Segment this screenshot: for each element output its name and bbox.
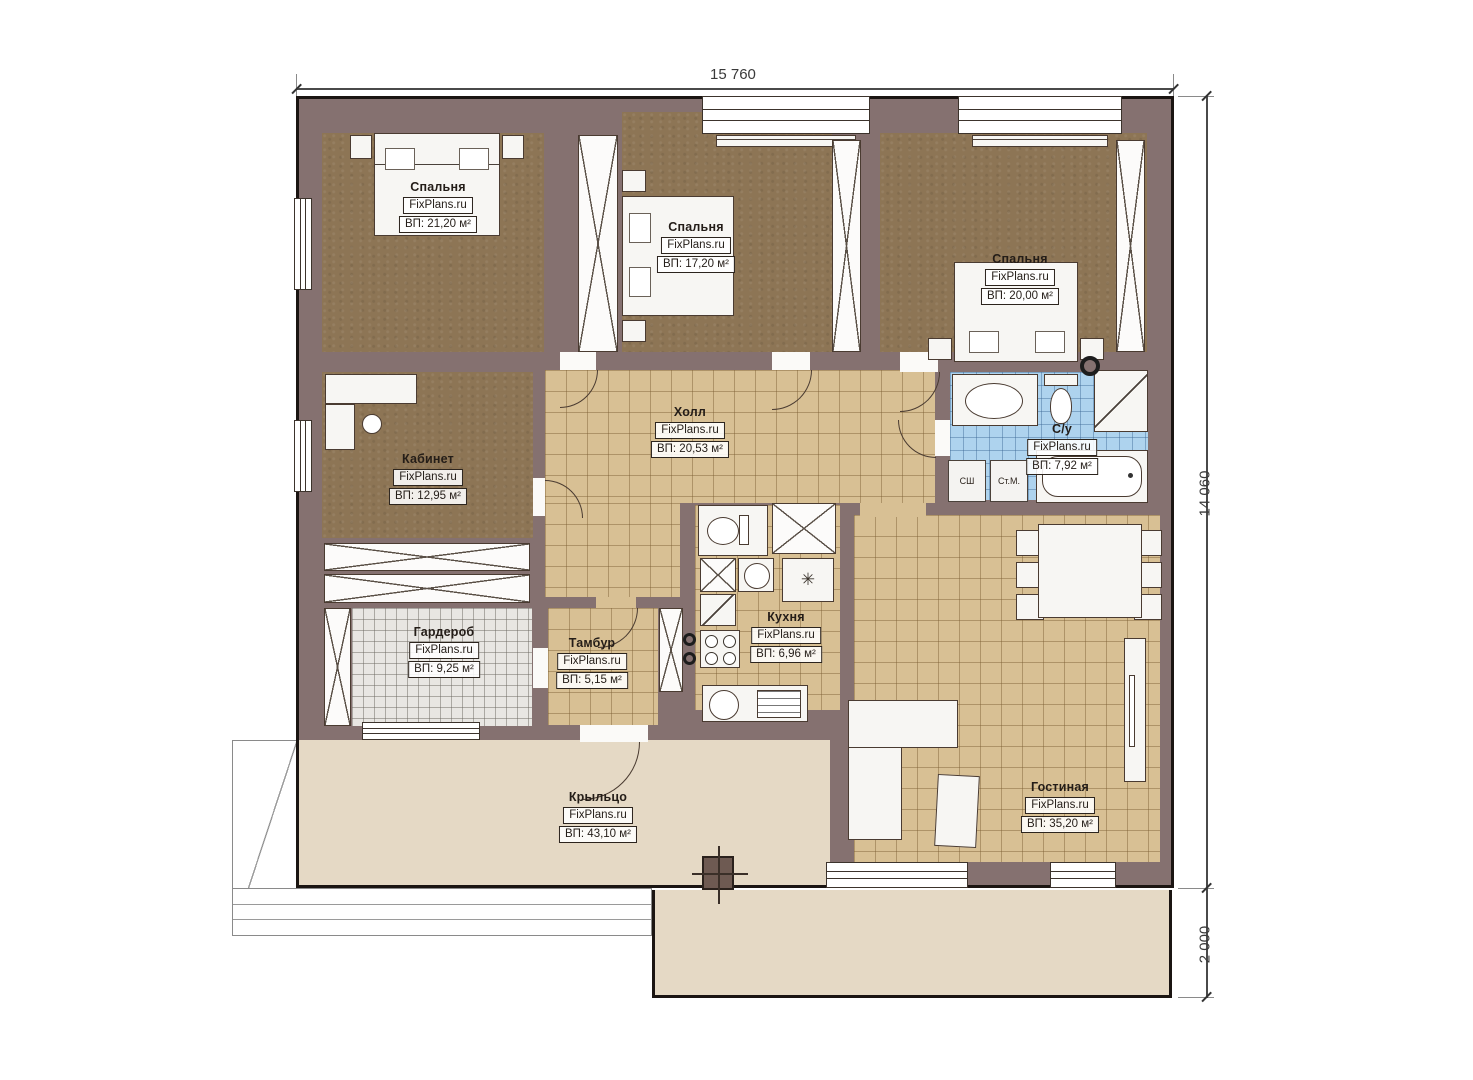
dining-table: [1038, 524, 1142, 618]
wc-room: [698, 505, 768, 556]
room-area: ВП: 12,95 м²: [389, 488, 467, 505]
watermark: FixPlans.ru: [1027, 439, 1097, 456]
nightstand: [350, 135, 372, 159]
room-area: ВП: 9,25 м²: [408, 661, 480, 678]
closet: [1116, 140, 1145, 352]
dim-label-right: 14 060: [1196, 471, 1213, 517]
storage-cabinet: [772, 503, 836, 554]
watermark: FixPlans.ru: [985, 269, 1055, 286]
door-opening-bathroom: [935, 420, 950, 456]
coffee-table: [934, 774, 980, 848]
room-area: ВП: 35,20 м²: [1021, 816, 1099, 833]
toilet: [1050, 388, 1072, 424]
closet: [659, 608, 683, 692]
dishwasher: [757, 690, 801, 718]
toilet: [707, 517, 739, 545]
watermark: FixPlans.ru: [409, 642, 479, 659]
dim-extension: [1173, 74, 1174, 96]
room-name: Спальня: [992, 252, 1047, 266]
dim-line-top: [296, 88, 1174, 90]
watermark: FixPlans.ru: [661, 237, 731, 254]
sofa-arm: [848, 700, 958, 748]
room-name: Кухня: [767, 610, 805, 624]
room-label-bedroom-1: Спальня FixPlans.ru ВП: 21,20 м²: [399, 180, 477, 233]
toilet-tank: [1044, 374, 1078, 386]
room-name: С/у: [1052, 422, 1072, 436]
room-name: Спальня: [410, 180, 465, 194]
closet: [578, 135, 618, 352]
washer-label: Ст.М.: [998, 476, 1020, 486]
room-label-tambour: Тамбур FixPlans.ru ВП: 5,15 м²: [556, 636, 628, 689]
terrace: [652, 890, 1172, 998]
room-label-living: Гостиная FixPlans.ru ВП: 35,20 м²: [1021, 780, 1099, 833]
dim-extension: [1178, 888, 1214, 889]
watermark: FixPlans.ru: [751, 627, 821, 644]
room-area: ВП: 6,96 м²: [750, 646, 822, 663]
watermark: FixPlans.ru: [1025, 797, 1095, 814]
fridge-icon: ✳: [801, 570, 815, 590]
porch-steps-bottom: [232, 888, 652, 936]
wardrobe-cabinet: [324, 574, 530, 603]
door-opening-entrance: [580, 725, 648, 742]
watermark: FixPlans.ru: [563, 807, 633, 824]
door-opening-tambour: [596, 597, 636, 608]
column-axis: [718, 846, 720, 904]
nightstand: [928, 338, 952, 360]
sink: [744, 563, 770, 589]
pillow: [459, 148, 489, 170]
room-name: Кабинет: [402, 452, 454, 466]
watermark: FixPlans.ru: [655, 422, 725, 439]
window: [362, 722, 480, 740]
desk-return: [325, 404, 355, 450]
stove: [700, 630, 740, 668]
room-label-bedroom-3: Спальня FixPlans.ru ВП: 20,00 м²: [981, 252, 1059, 305]
kitchen-sink-cabinet: [738, 558, 774, 592]
room-label-hall: Холл FixPlans.ru ВП: 20,53 м²: [651, 405, 729, 458]
watermark: FixPlans.ru: [393, 469, 463, 486]
room-label-bathroom: С/у FixPlans.ru ВП: 7,92 м²: [1026, 422, 1098, 475]
drain: [1128, 473, 1133, 478]
radiator: [972, 135, 1108, 147]
wardrobe-cabinet: [324, 543, 530, 571]
room-name: Тамбур: [569, 636, 616, 650]
bathroom-counter: [952, 374, 1038, 426]
door-opening-bedroom-2: [772, 352, 810, 370]
kitchen-cabinet: [700, 558, 736, 592]
room-area: ВП: 5,15 м²: [556, 672, 628, 689]
stove-knob: [683, 633, 696, 646]
shower: [1094, 370, 1148, 432]
office-chair: [362, 414, 382, 434]
pillow: [385, 148, 415, 170]
room-label-porch: Крыльцо FixPlans.ru ВП: 43,10 м²: [559, 790, 637, 843]
dim-label-top: 15 760: [710, 66, 756, 83]
vent-fan: [1080, 356, 1100, 376]
pillow: [1035, 331, 1065, 353]
room-area: ВП: 7,92 м²: [1026, 458, 1098, 475]
toilet-tank: [739, 515, 749, 545]
door-opening-wardrobe: [533, 648, 548, 688]
dim-extension: [1178, 96, 1214, 97]
room-area: ВП: 21,20 м²: [399, 216, 477, 233]
room-area: ВП: 43,10 м²: [559, 826, 637, 843]
window: [294, 420, 312, 492]
room-area: ВП: 20,00 м²: [981, 288, 1059, 305]
room-label-bedroom-2: Спальня FixPlans.ru ВП: 17,20 м²: [657, 220, 735, 273]
pillow: [969, 331, 999, 353]
washer-box: Ст.М.: [990, 460, 1028, 502]
porch-column: [702, 856, 734, 890]
window: [1050, 862, 1116, 888]
room-name: Гардероб: [414, 625, 475, 639]
nightstand: [622, 320, 646, 342]
sink: [709, 690, 739, 720]
room-floor-hall: [545, 370, 935, 503]
floor-plan: ✳ СШ Ст.М.: [0, 0, 1473, 1080]
room-label-kitchen: Кухня FixPlans.ru ВП: 6,96 м²: [750, 610, 822, 663]
watermark: FixPlans.ru: [403, 197, 473, 214]
dryer-label: СШ: [960, 476, 975, 486]
wardrobe-cabinet: [324, 608, 351, 726]
room-name: Холл: [674, 405, 706, 419]
window: [958, 96, 1122, 134]
door-opening-office: [533, 478, 545, 516]
desk: [325, 374, 417, 404]
room-name: Спальня: [668, 220, 723, 234]
fridge: ✳: [782, 558, 834, 602]
tv-stand: [1124, 638, 1146, 782]
tv: [1129, 675, 1135, 747]
nightstand: [622, 170, 646, 192]
dim-label-terrace: 2 000: [1196, 926, 1213, 964]
window: [826, 862, 968, 888]
dim-extension: [296, 74, 297, 96]
window: [702, 96, 870, 134]
room-name: Гостиная: [1031, 780, 1089, 794]
room-area: ВП: 17,20 м²: [657, 256, 735, 273]
room-area: ВП: 20,53 м²: [651, 441, 729, 458]
dryer-box: СШ: [948, 460, 986, 502]
dim-extension: [1178, 997, 1214, 998]
room-label-wardrobe: Гардероб FixPlans.ru ВП: 9,25 м²: [408, 625, 480, 678]
pillow: [629, 267, 651, 297]
stove-knob: [683, 652, 696, 665]
closet: [832, 140, 861, 352]
window: [294, 198, 312, 290]
door-opening-bedroom-1: [560, 352, 596, 370]
watermark: FixPlans.ru: [557, 653, 627, 670]
room-label-office: Кабинет FixPlans.ru ВП: 12,95 м²: [389, 452, 467, 505]
room-name: Крыльцо: [569, 790, 627, 804]
kitchen-cabinet: [700, 594, 736, 626]
kitchen-counter: [702, 685, 808, 722]
sink: [965, 383, 1023, 419]
nightstand: [502, 135, 524, 159]
opening-hall-living: [860, 503, 926, 517]
column-axis: [692, 873, 748, 875]
pillow: [629, 213, 651, 243]
